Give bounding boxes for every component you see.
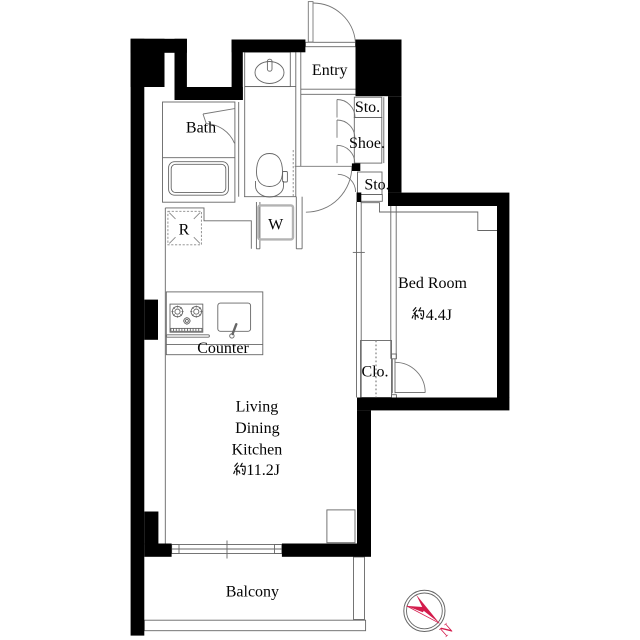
svg-text:W: W [268,217,284,234]
svg-text:Balcony: Balcony [226,584,279,601]
svg-text:Sto.: Sto. [355,99,380,116]
svg-text:4.4J: 4.4J [426,307,452,324]
svg-text:Entry: Entry [312,62,348,79]
svg-text:11.2J: 11.2J [246,462,280,479]
svg-text:Sto.: Sto. [364,177,389,194]
svg-text:Kitchen: Kitchen [232,441,283,458]
svg-text:Shoe.: Shoe. [349,135,385,152]
svg-text:Bath: Bath [186,120,216,137]
svg-text:Dining: Dining [235,420,279,437]
svg-text:Clo.: Clo. [361,363,388,380]
svg-text:Counter: Counter [197,340,249,357]
svg-text:Bed Room: Bed Room [398,275,467,292]
svg-text:R: R [179,222,190,239]
svg-text:Living: Living [236,398,279,415]
